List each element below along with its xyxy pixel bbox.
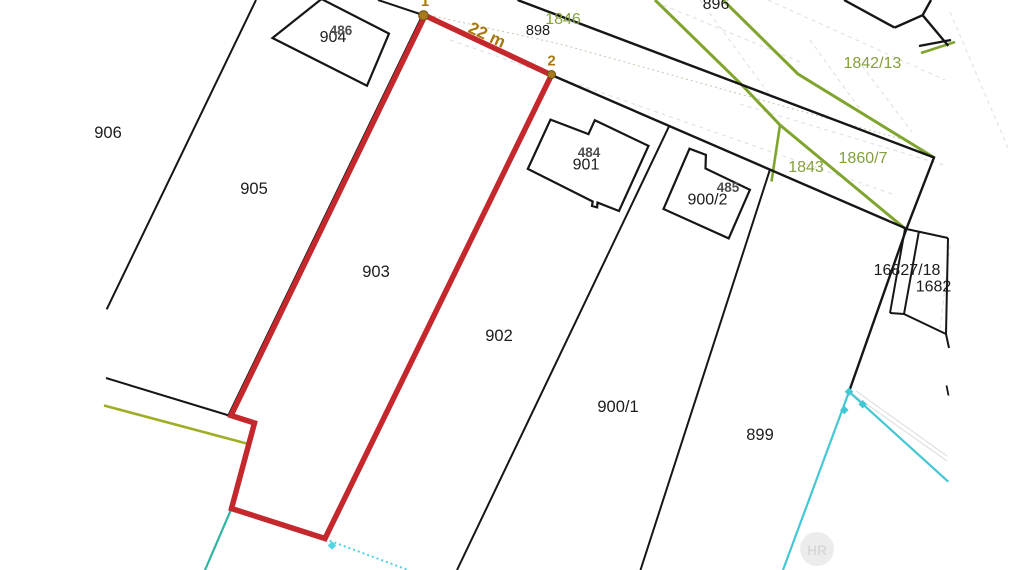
svg-text:1: 1 xyxy=(421,0,429,10)
svg-text:1860/7: 1860/7 xyxy=(839,150,888,167)
svg-text:486: 486 xyxy=(330,23,353,38)
svg-text:1846: 1846 xyxy=(545,11,581,28)
svg-text:1842/13: 1842/13 xyxy=(843,55,901,72)
svg-text:905: 905 xyxy=(240,180,268,198)
svg-text:16827/18: 16827/18 xyxy=(874,262,941,279)
svg-text:1843: 1843 xyxy=(788,159,824,176)
svg-text:1682: 1682 xyxy=(916,279,952,296)
svg-text:899: 899 xyxy=(746,426,774,444)
svg-text:902: 902 xyxy=(485,327,513,345)
svg-text:485: 485 xyxy=(717,180,740,195)
svg-text:484: 484 xyxy=(578,145,601,160)
svg-text:903: 903 xyxy=(362,263,390,281)
svg-text:HR: HR xyxy=(807,543,827,558)
svg-text:2: 2 xyxy=(547,53,555,70)
svg-text:900/1: 900/1 xyxy=(597,398,638,416)
svg-text:906: 906 xyxy=(94,124,122,142)
svg-text:896: 896 xyxy=(703,0,730,13)
